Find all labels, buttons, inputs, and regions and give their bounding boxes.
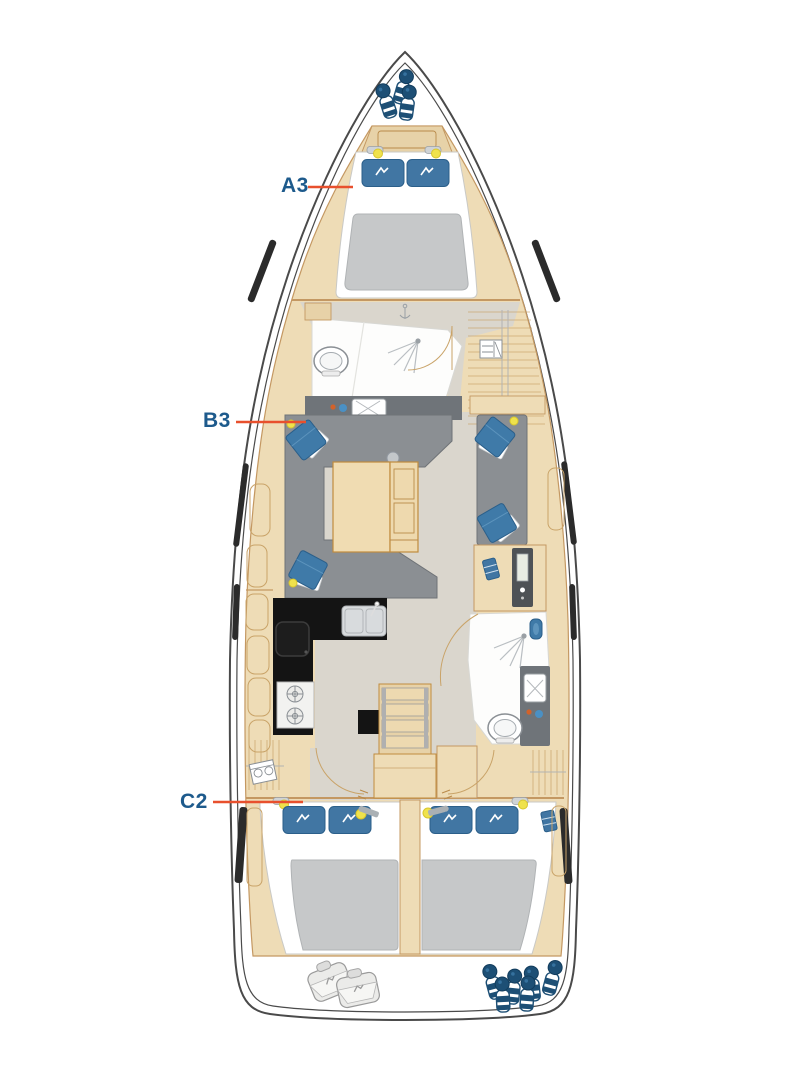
pillow-icon: [362, 160, 404, 187]
tap-hot: [330, 404, 335, 409]
tap-cold: [535, 710, 543, 718]
hull-window-icon: [531, 239, 561, 303]
stove-icon: [276, 622, 309, 656]
laundry-icon: [249, 760, 277, 785]
reading-light-icon: [510, 417, 518, 425]
burner-icon: [287, 686, 303, 702]
engine-box: [437, 746, 477, 798]
oven-unit: [277, 682, 314, 728]
nav-station: [474, 545, 546, 611]
forward-head: [305, 318, 462, 420]
center-console: [400, 800, 420, 954]
hull-window-icon: [247, 239, 277, 303]
cabin-label-c2: C2: [180, 790, 208, 813]
fender-icon: [519, 976, 535, 1012]
cabin-label-a3: A3: [281, 174, 309, 197]
sink-icon: [342, 602, 386, 636]
forward-cabin: [336, 126, 477, 298]
layout-canvas: A3 B3 C2: [0, 0, 810, 1080]
pillow-icon: [476, 807, 518, 834]
aft-cabin-port: [260, 798, 400, 955]
panel-knob: [520, 588, 525, 593]
saloon: [285, 396, 546, 611]
toilet-icon: [488, 714, 522, 743]
galley-bin: [358, 710, 380, 734]
fender-icon: [495, 977, 511, 1013]
basin-icon: [530, 619, 542, 639]
burner-icon: [287, 708, 303, 724]
stove-knob: [304, 650, 307, 653]
reading-light-icon: [289, 579, 297, 587]
forward-mattress-gray: [345, 214, 468, 290]
stairs-platform: [374, 754, 436, 798]
pillow-icon: [283, 807, 325, 834]
yacht-layout-plan: A3 B3 C2: [0, 0, 810, 1080]
panel-display: [517, 554, 528, 581]
saloon-table: [333, 452, 418, 552]
tap-hot: [526, 709, 531, 714]
starboard-sofa-shelf: [470, 396, 545, 414]
hall-step: [305, 303, 331, 320]
nav-desk: [474, 545, 546, 611]
vent-grid-icon: [480, 340, 502, 358]
aft-stbd-mattress-gray: [422, 860, 536, 950]
cabin-label-b3: B3: [203, 409, 231, 432]
tap-cold: [339, 404, 347, 412]
table-top: [333, 462, 390, 552]
panel-knob: [521, 597, 524, 600]
aft-port-mattress-gray: [291, 860, 398, 950]
pillow-icon: [407, 160, 449, 187]
aft-cabin-starboard: [420, 798, 557, 955]
toilet-icon: [314, 347, 348, 376]
